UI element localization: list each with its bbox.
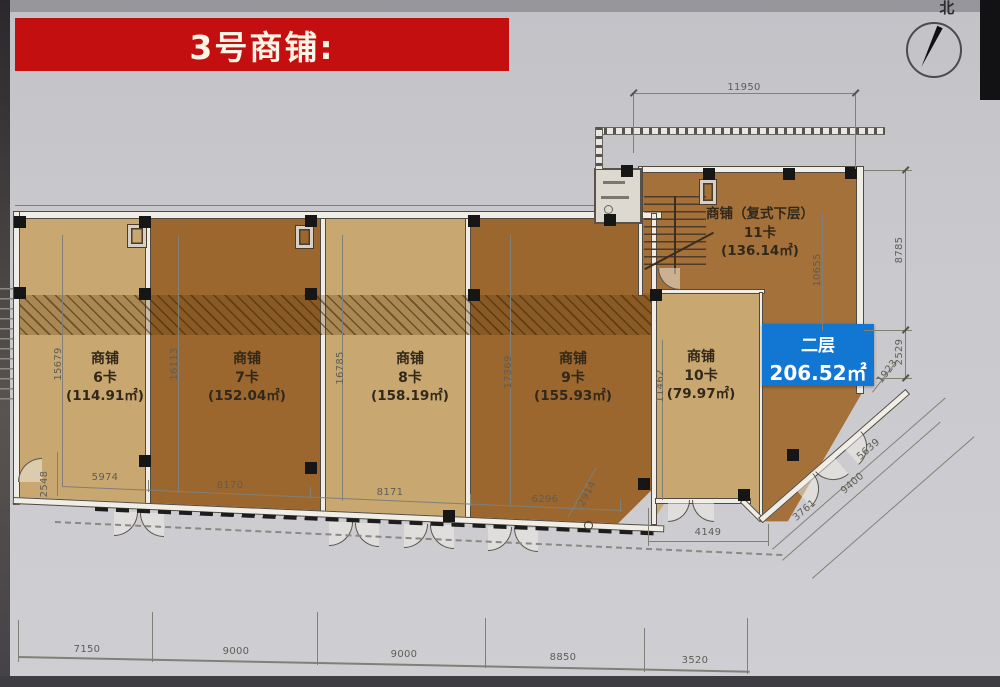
column — [139, 288, 151, 300]
dim-inner-width-4: 6296 — [520, 494, 570, 506]
dim-bottom-5: 3520 — [668, 655, 722, 667]
column — [305, 462, 317, 474]
party-wall — [320, 213, 326, 533]
dim-height-shop9: 17369 — [503, 347, 515, 397]
wall-main-top — [13, 211, 662, 219]
column — [14, 287, 26, 299]
column — [468, 289, 480, 301]
wall-main-left — [13, 211, 20, 505]
second-floor-badge: 二层 206.52㎡ — [762, 324, 874, 386]
dim-ext — [648, 508, 649, 546]
dim-ext — [485, 618, 486, 668]
dim-bottom-3: 9000 — [377, 649, 431, 661]
dim-inner-left-small: 2548 — [39, 462, 51, 506]
floor-plan-page: 3号商铺: 北 — [0, 0, 1000, 687]
door-arc — [430, 525, 454, 549]
second-floor-area: 206.52㎡ — [762, 357, 874, 386]
dim-bottom-2: 9000 — [209, 646, 263, 658]
frame-top-strip — [0, 0, 1000, 12]
dim-bottom-1: 7150 — [60, 644, 114, 656]
shop-8-label: 商铺 8卡 (158.19㎡) — [345, 350, 475, 406]
dim-line-4149 — [648, 541, 768, 542]
fixture-icon — [604, 205, 613, 214]
dim-top-width: 11950 — [714, 82, 774, 94]
dim-height-shop10: 11462 — [655, 361, 667, 411]
dim-right-inner: 10655 — [812, 246, 824, 294]
dim-bottom-4: 8850 — [536, 652, 590, 664]
second-floor-label: 二层 — [762, 331, 874, 356]
dim-height-shop7: 16113 — [169, 339, 181, 389]
wall-niche — [699, 179, 717, 205]
column — [604, 214, 616, 226]
door-arc — [692, 500, 714, 522]
dim-tick — [310, 487, 311, 499]
column — [738, 489, 750, 501]
door-arc — [668, 500, 690, 522]
balcony-dotted-railing — [595, 127, 885, 135]
column — [14, 216, 26, 228]
dim-inner-width-2: 8170 — [205, 480, 255, 492]
dim-ext — [768, 524, 769, 546]
dim-height-shop8: 16785 — [335, 343, 347, 393]
door-arc — [404, 524, 428, 548]
dim-ext — [152, 612, 153, 662]
frame-bottom-strip — [0, 676, 1000, 687]
wall-niche — [295, 225, 314, 249]
column — [650, 289, 662, 301]
shop-9-label: 商铺 9卡 (155.93㎡) — [508, 350, 638, 406]
column — [703, 168, 715, 180]
column — [305, 288, 317, 300]
dim-right-upper: 8785 — [894, 226, 906, 274]
dim-ext — [317, 612, 318, 665]
column — [787, 449, 799, 461]
dim-tick — [148, 480, 149, 492]
dim-ext — [855, 93, 856, 169]
dim-tick — [620, 500, 621, 512]
column — [139, 216, 151, 228]
column — [638, 478, 650, 490]
tiny-room-label — [601, 196, 629, 199]
north-label: 北 — [932, 2, 962, 14]
column — [305, 215, 317, 227]
tiny-room-label — [603, 181, 625, 184]
dim-tick — [470, 494, 471, 506]
page-title: 3号商铺: — [189, 21, 334, 69]
frame-corner-black — [980, 0, 1000, 100]
title-banner: 3号商铺: — [15, 18, 509, 71]
mezzanine-hatch-band — [15, 295, 660, 335]
dim-line-small-left — [57, 452, 58, 496]
dim-inner-width-right: 4149 — [683, 527, 733, 539]
column — [139, 455, 151, 467]
column — [783, 168, 795, 180]
dim-ext — [644, 628, 645, 672]
wall-shop10-top — [653, 289, 765, 294]
column — [443, 510, 455, 522]
dim-ext — [18, 620, 19, 662]
dim-height-shop6: 15679 — [53, 339, 65, 389]
column — [468, 215, 480, 227]
dim-ext — [747, 618, 748, 674]
fixture-icon — [584, 521, 593, 530]
door-arc — [514, 528, 538, 552]
shop-7-label: 商铺 7卡 (152.04㎡) — [182, 350, 312, 406]
dim-inner-width-1: 5974 — [80, 472, 130, 484]
wall-upper-top — [638, 166, 864, 173]
exterior-steps — [0, 288, 14, 406]
balcony-dotted-railing-side — [595, 127, 603, 169]
door-arc — [488, 527, 512, 551]
dim-inner-width-3: 8171 — [365, 487, 415, 499]
column — [621, 165, 633, 177]
sidewalk-line — [15, 205, 595, 206]
dim-ext — [633, 93, 634, 153]
